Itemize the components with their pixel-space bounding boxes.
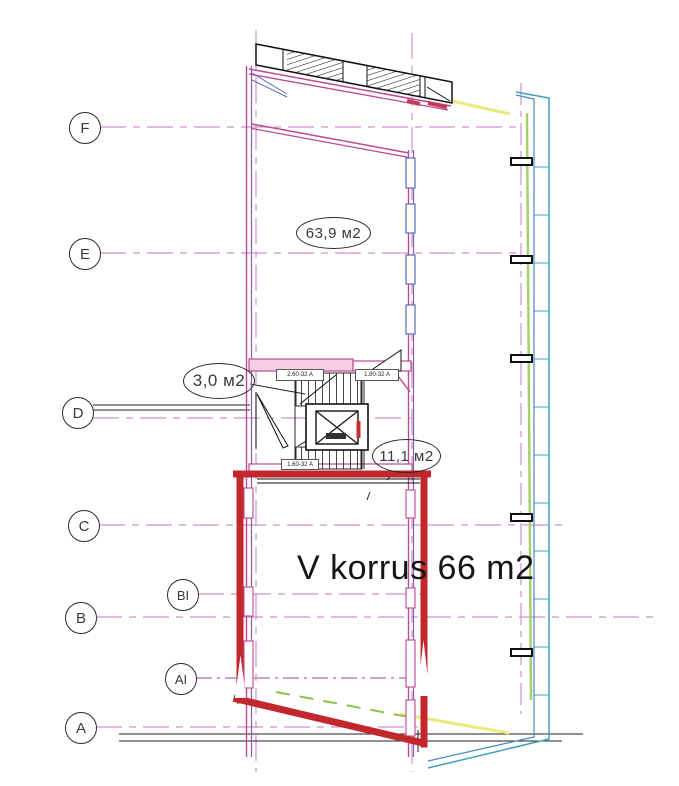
floorplan-canvas: F E D C BI B AI A 63,9 м2 3,0 м2 11,1 м2… (0, 0, 679, 786)
grid-label-f: F (69, 112, 101, 144)
floor-title: V korrus 66 m2 (297, 549, 535, 588)
arrow-up-icon (417, 640, 430, 696)
grid-label-ai: AI (165, 663, 197, 695)
area-label-11-1: 11,1 м2 (372, 439, 441, 473)
grid-label-c: C (68, 510, 100, 542)
area-label-63-9: 63,9 м2 (296, 217, 371, 249)
floorplan-drawing (0, 0, 679, 786)
grid-label-a: A (65, 712, 97, 744)
door-tag: 1.60-32 A (281, 459, 319, 470)
grid-label-bi: BI (167, 579, 199, 611)
elevator-icon (306, 404, 368, 450)
door-tag: 1.80-32 A (355, 369, 399, 381)
door-tag: 2.60-32 A (276, 369, 324, 381)
grid-axis-lines (93, 30, 660, 772)
grid-label-e: E (69, 238, 101, 270)
grid-label-d: D (62, 397, 94, 429)
area-label-3-0: 3,0 м2 (183, 363, 255, 399)
room-interior-lines (257, 479, 420, 500)
grid-label-b: B (65, 602, 97, 634)
